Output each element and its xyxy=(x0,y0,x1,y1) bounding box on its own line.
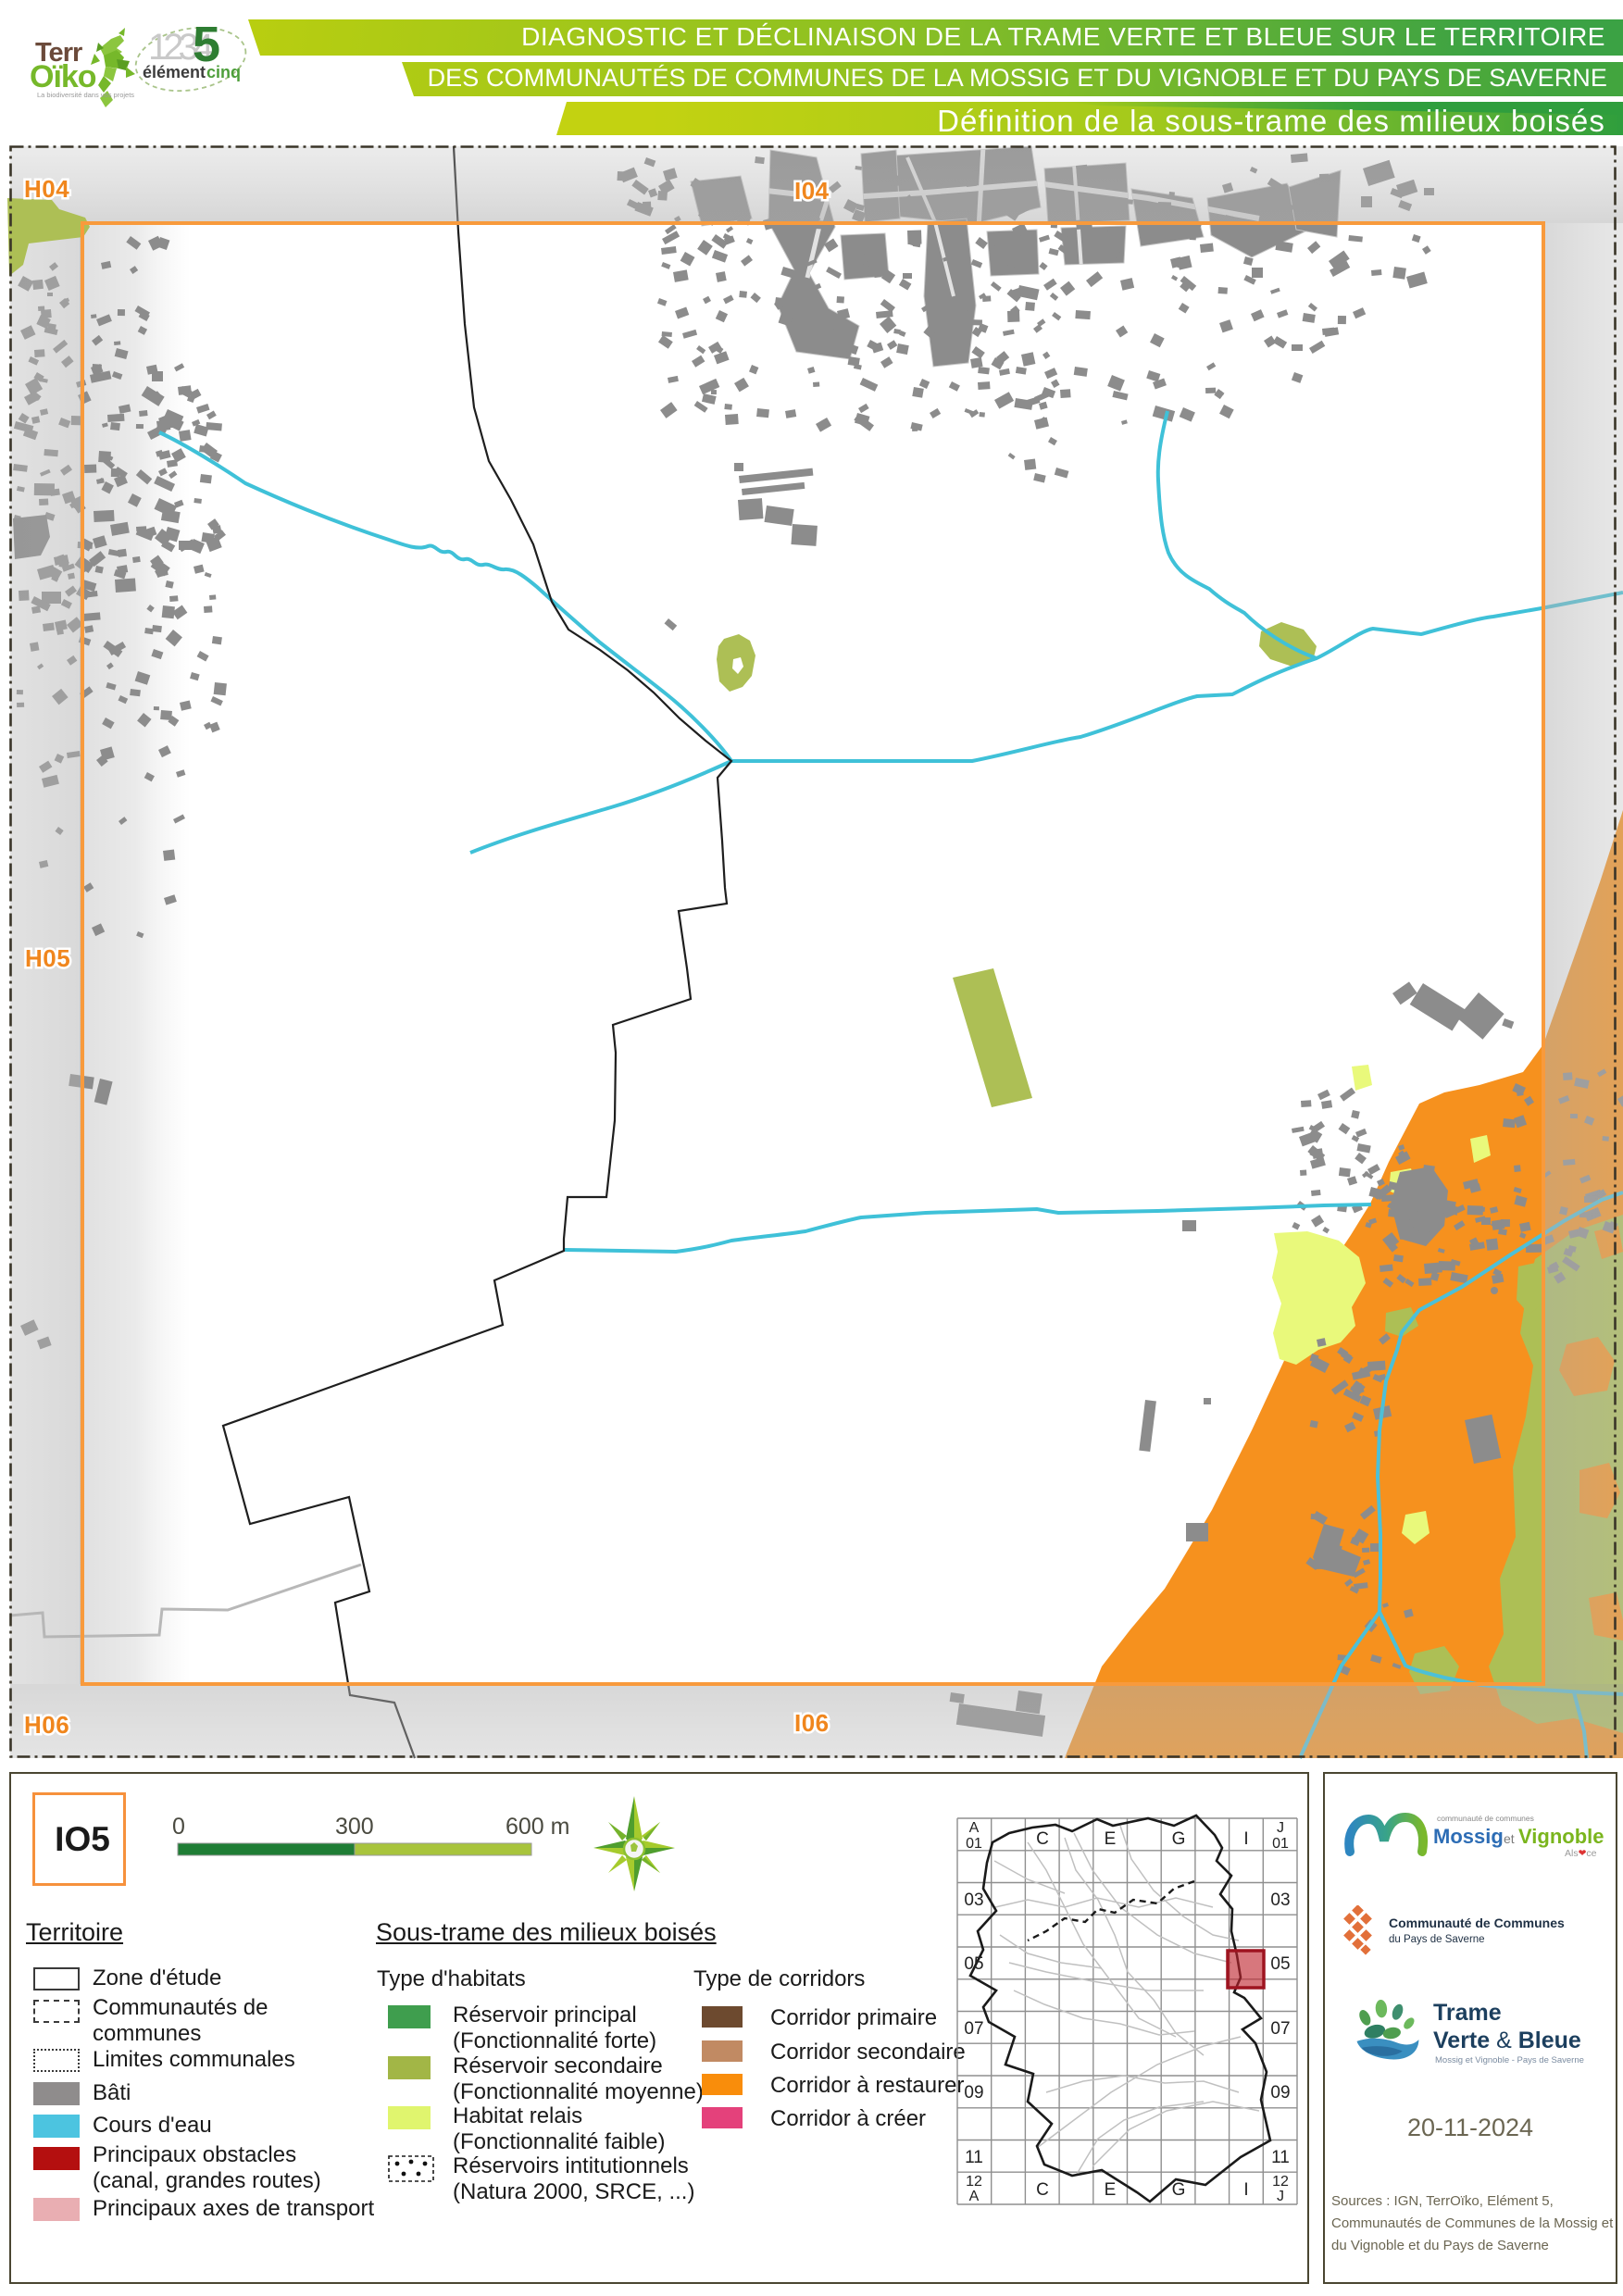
svg-text:cinq: cinq xyxy=(206,63,241,81)
svg-text:élément: élément xyxy=(143,63,206,81)
svg-text:05: 05 xyxy=(1270,1954,1290,1974)
svg-text:12: 12 xyxy=(1272,2174,1289,2190)
svg-text:G: G xyxy=(1172,1829,1186,1849)
svg-text:Trame: Trame xyxy=(1433,2000,1502,2026)
svg-text:Mossig et Vignoble - Pays de S: Mossig et Vignoble - Pays de Saverne xyxy=(1435,2055,1584,2065)
svg-text:600 m: 600 m xyxy=(506,1814,569,1840)
svg-text:Oïko: Oïko xyxy=(30,59,96,94)
svg-text:07: 07 xyxy=(964,2019,983,2039)
svg-text:Verte & Bleue: Verte & Bleue xyxy=(1433,2028,1581,2053)
svg-text:H04: H04 xyxy=(24,175,69,203)
svg-text:09: 09 xyxy=(1270,2083,1290,2103)
svg-text:E: E xyxy=(1105,2180,1117,2200)
svg-text:11: 11 xyxy=(965,2148,983,2167)
svg-text:C: C xyxy=(1036,2180,1049,2200)
svg-text:Mossig: Mossig xyxy=(1433,1825,1504,1848)
svg-text:03: 03 xyxy=(1270,1890,1290,1910)
svg-text:Vignoble: Vignoble xyxy=(1518,1825,1604,1848)
svg-text:0: 0 xyxy=(172,1814,185,1840)
svg-text:A: A xyxy=(969,1820,980,1836)
svg-text:Als❤ce: Als❤ce xyxy=(1565,1848,1597,1859)
svg-text:I06: I06 xyxy=(794,1709,830,1737)
svg-text:12: 12 xyxy=(966,2174,982,2190)
svg-text:J: J xyxy=(1277,2189,1284,2204)
svg-text:H05: H05 xyxy=(25,944,70,972)
svg-text:09: 09 xyxy=(964,2083,983,2103)
svg-text:H06: H06 xyxy=(24,1711,69,1739)
svg-text:07: 07 xyxy=(1270,2019,1290,2039)
svg-text:I04: I04 xyxy=(794,177,830,205)
svg-text:05: 05 xyxy=(964,1954,983,1974)
svg-text:et: et xyxy=(1504,1831,1515,1846)
svg-text:Communauté de Communes: Communauté de Communes xyxy=(1389,1915,1565,1930)
svg-text:G: G xyxy=(1172,2180,1186,2200)
svg-text:01: 01 xyxy=(1272,1836,1289,1852)
svg-text:communauté de communes: communauté de communes xyxy=(1437,1814,1534,1823)
svg-text:C: C xyxy=(1036,1829,1049,1849)
svg-text:11: 11 xyxy=(1271,2148,1290,2167)
svg-text:I: I xyxy=(1243,1829,1248,1849)
svg-text:du Pays de Saverne: du Pays de Saverne xyxy=(1389,1934,1485,1945)
svg-text:E: E xyxy=(1105,1829,1117,1849)
svg-text:A: A xyxy=(969,2189,980,2204)
svg-text:01: 01 xyxy=(966,1836,982,1852)
svg-text:J: J xyxy=(1277,1820,1284,1836)
svg-text:03: 03 xyxy=(964,1890,983,1910)
svg-text:I: I xyxy=(1243,2180,1248,2200)
svg-text:300: 300 xyxy=(335,1814,374,1840)
